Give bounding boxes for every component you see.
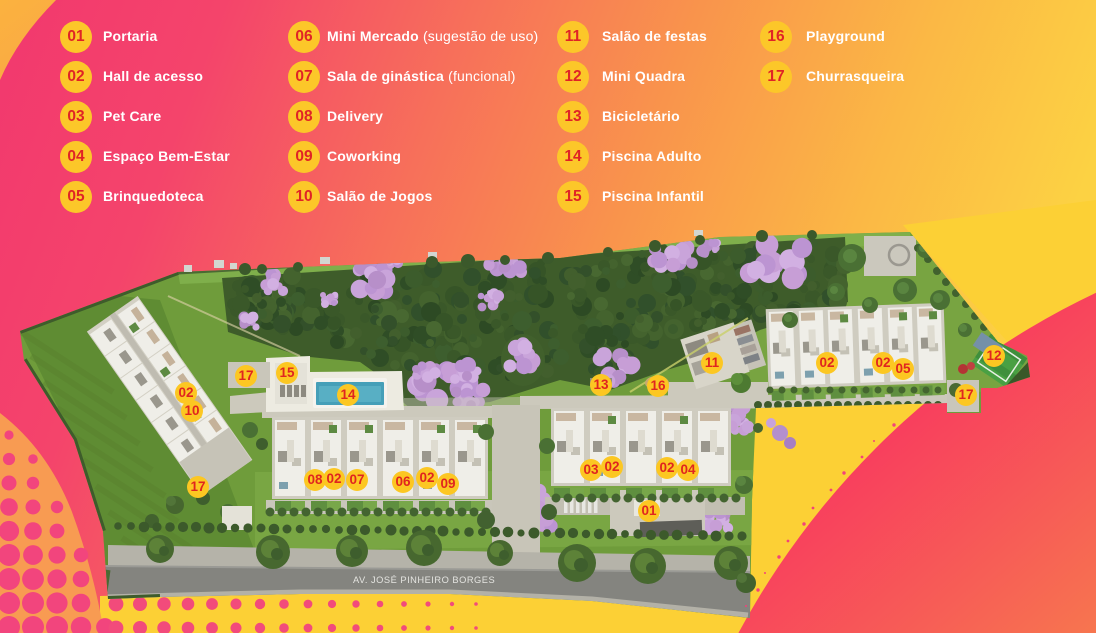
svg-text:AV. JOSÉ PINHEIRO BORGES: AV. JOSÉ PINHEIRO BORGES	[353, 575, 495, 585]
